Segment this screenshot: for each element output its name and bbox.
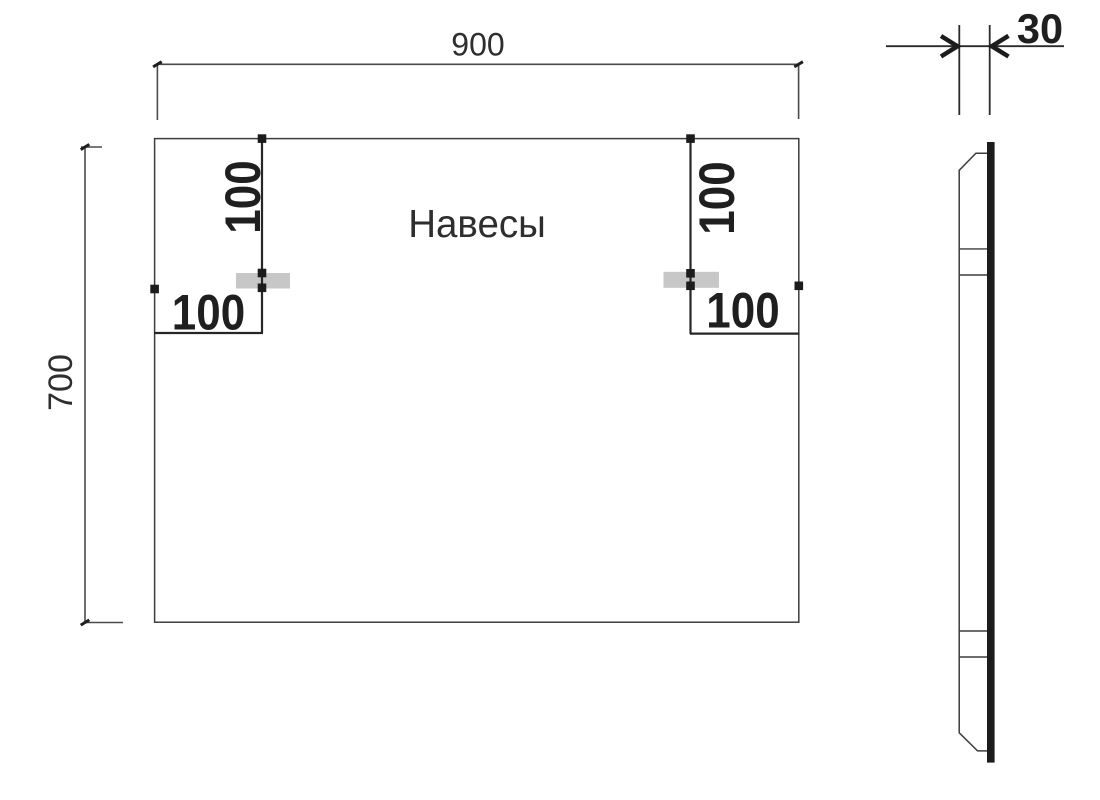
svg-text:900: 900 xyxy=(451,27,504,63)
svg-text:100: 100 xyxy=(214,160,270,233)
svg-text:100: 100 xyxy=(172,284,245,340)
svg-text:700: 700 xyxy=(42,354,80,411)
svg-text:100: 100 xyxy=(688,161,744,234)
svg-text:30: 30 xyxy=(1017,5,1063,52)
svg-text:Навесы: Навесы xyxy=(408,203,546,246)
svg-text:100: 100 xyxy=(706,282,779,338)
